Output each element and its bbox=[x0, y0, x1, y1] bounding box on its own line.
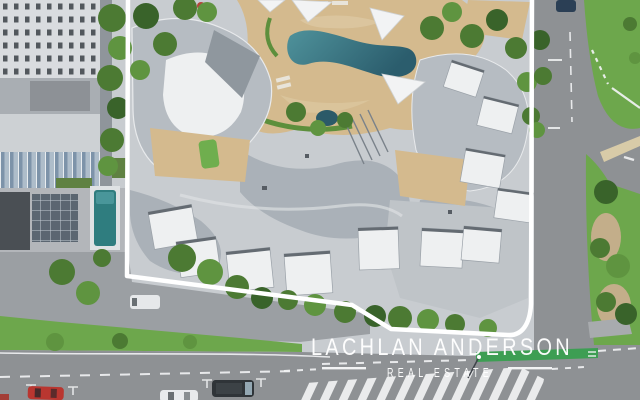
watermark-rule-left bbox=[322, 367, 366, 369]
white-van-kerbside bbox=[130, 295, 160, 309]
tree bbox=[505, 37, 527, 59]
tree bbox=[49, 259, 75, 285]
tree bbox=[286, 102, 306, 122]
tree bbox=[130, 60, 150, 80]
tree bbox=[310, 120, 326, 136]
car-edge-of-frame bbox=[0, 394, 9, 400]
tree bbox=[486, 9, 508, 31]
tree bbox=[388, 306, 412, 330]
shrub bbox=[623, 17, 637, 31]
tree bbox=[197, 2, 217, 22]
tree bbox=[615, 303, 637, 325]
roof-vent bbox=[448, 210, 452, 214]
watermark-rule-right bbox=[508, 367, 552, 369]
tree bbox=[606, 254, 630, 278]
aerial-photo: LACHLAN ANDERSON REAL ESTATE bbox=[0, 0, 640, 400]
tree bbox=[417, 309, 439, 331]
tree bbox=[278, 290, 298, 310]
tree bbox=[93, 249, 111, 267]
tree bbox=[100, 128, 124, 152]
tree bbox=[97, 65, 123, 91]
lap-pool-shallow-end bbox=[96, 192, 114, 204]
watermark-subtitle: REAL ESTATE bbox=[387, 366, 493, 380]
tree bbox=[76, 281, 100, 305]
blue-car-on-road bbox=[556, 0, 576, 12]
tree bbox=[460, 24, 484, 48]
red-car-parked bbox=[28, 386, 64, 400]
dark-van-parked bbox=[212, 380, 254, 397]
podium-roof-inset bbox=[30, 81, 90, 111]
tree bbox=[197, 259, 223, 285]
tree bbox=[168, 244, 196, 272]
tree bbox=[534, 67, 552, 85]
podium-deck bbox=[0, 114, 104, 152]
tree bbox=[517, 72, 537, 92]
tree bbox=[46, 333, 64, 351]
dark-court bbox=[0, 192, 30, 250]
tree bbox=[594, 180, 618, 204]
tree bbox=[112, 333, 128, 349]
tree bbox=[420, 16, 444, 40]
roof-vent bbox=[262, 186, 267, 190]
aerial-photo-canvas: LACHLAN ANDERSON REAL ESTATE bbox=[0, 0, 640, 400]
tree bbox=[133, 3, 159, 29]
tree bbox=[153, 32, 177, 56]
tree bbox=[98, 4, 126, 32]
highrise-window-grid bbox=[0, 0, 104, 78]
tree bbox=[590, 238, 610, 258]
tree bbox=[337, 112, 353, 128]
watermark-title: LACHLAN ANDERSON bbox=[311, 334, 573, 361]
tree bbox=[442, 2, 462, 22]
white-car-parked bbox=[160, 390, 198, 400]
planter bbox=[56, 178, 92, 188]
roof-vent bbox=[305, 154, 309, 158]
tree bbox=[596, 292, 616, 312]
tree bbox=[183, 335, 197, 349]
atrium-glazing-grid bbox=[32, 194, 78, 242]
tree bbox=[98, 156, 118, 176]
